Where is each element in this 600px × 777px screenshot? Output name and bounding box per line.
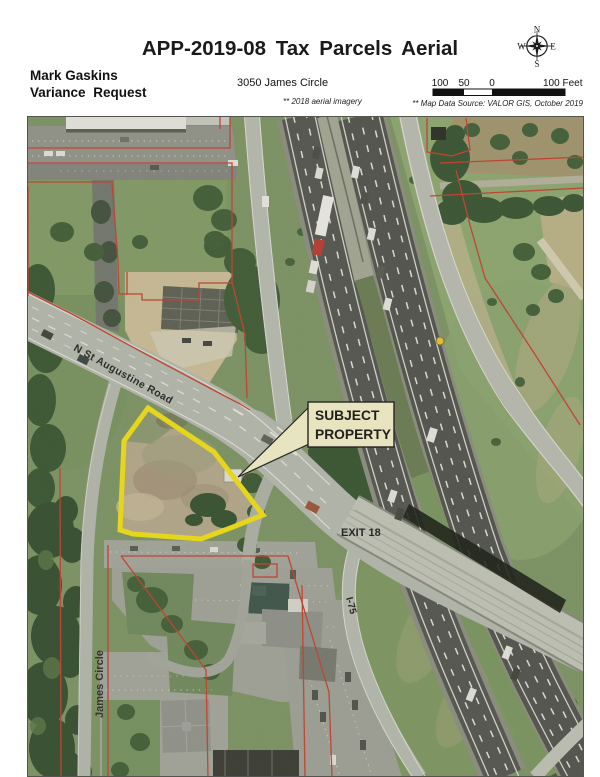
svg-text:50: 50 — [458, 78, 470, 89]
svg-text:E: E — [550, 42, 556, 52]
svg-text:0: 0 — [489, 78, 495, 89]
svg-text:** 2018 aerial imagery: ** 2018 aerial imagery — [283, 97, 363, 106]
svg-text:W: W — [517, 42, 526, 52]
svg-text:APP-2019-08 Tax Parcels Aeria: APP-2019-08 Tax Parcels Aerial — [142, 37, 458, 60]
svg-text:N: N — [534, 25, 541, 35]
svg-text:100 Feet: 100 Feet — [543, 78, 583, 89]
svg-text:S: S — [534, 59, 539, 69]
svg-text:Mark Gaskins: Mark Gaskins — [30, 68, 118, 83]
svg-text:3050 James Circle: 3050 James Circle — [237, 77, 328, 89]
svg-text:100: 100 — [432, 78, 449, 89]
svg-text:** Map Data Source: VALOR G: ** Map Data Source: VALOR GIS, October 2… — [412, 99, 583, 108]
svg-text:Variance Request: Variance Request — [30, 85, 147, 100]
